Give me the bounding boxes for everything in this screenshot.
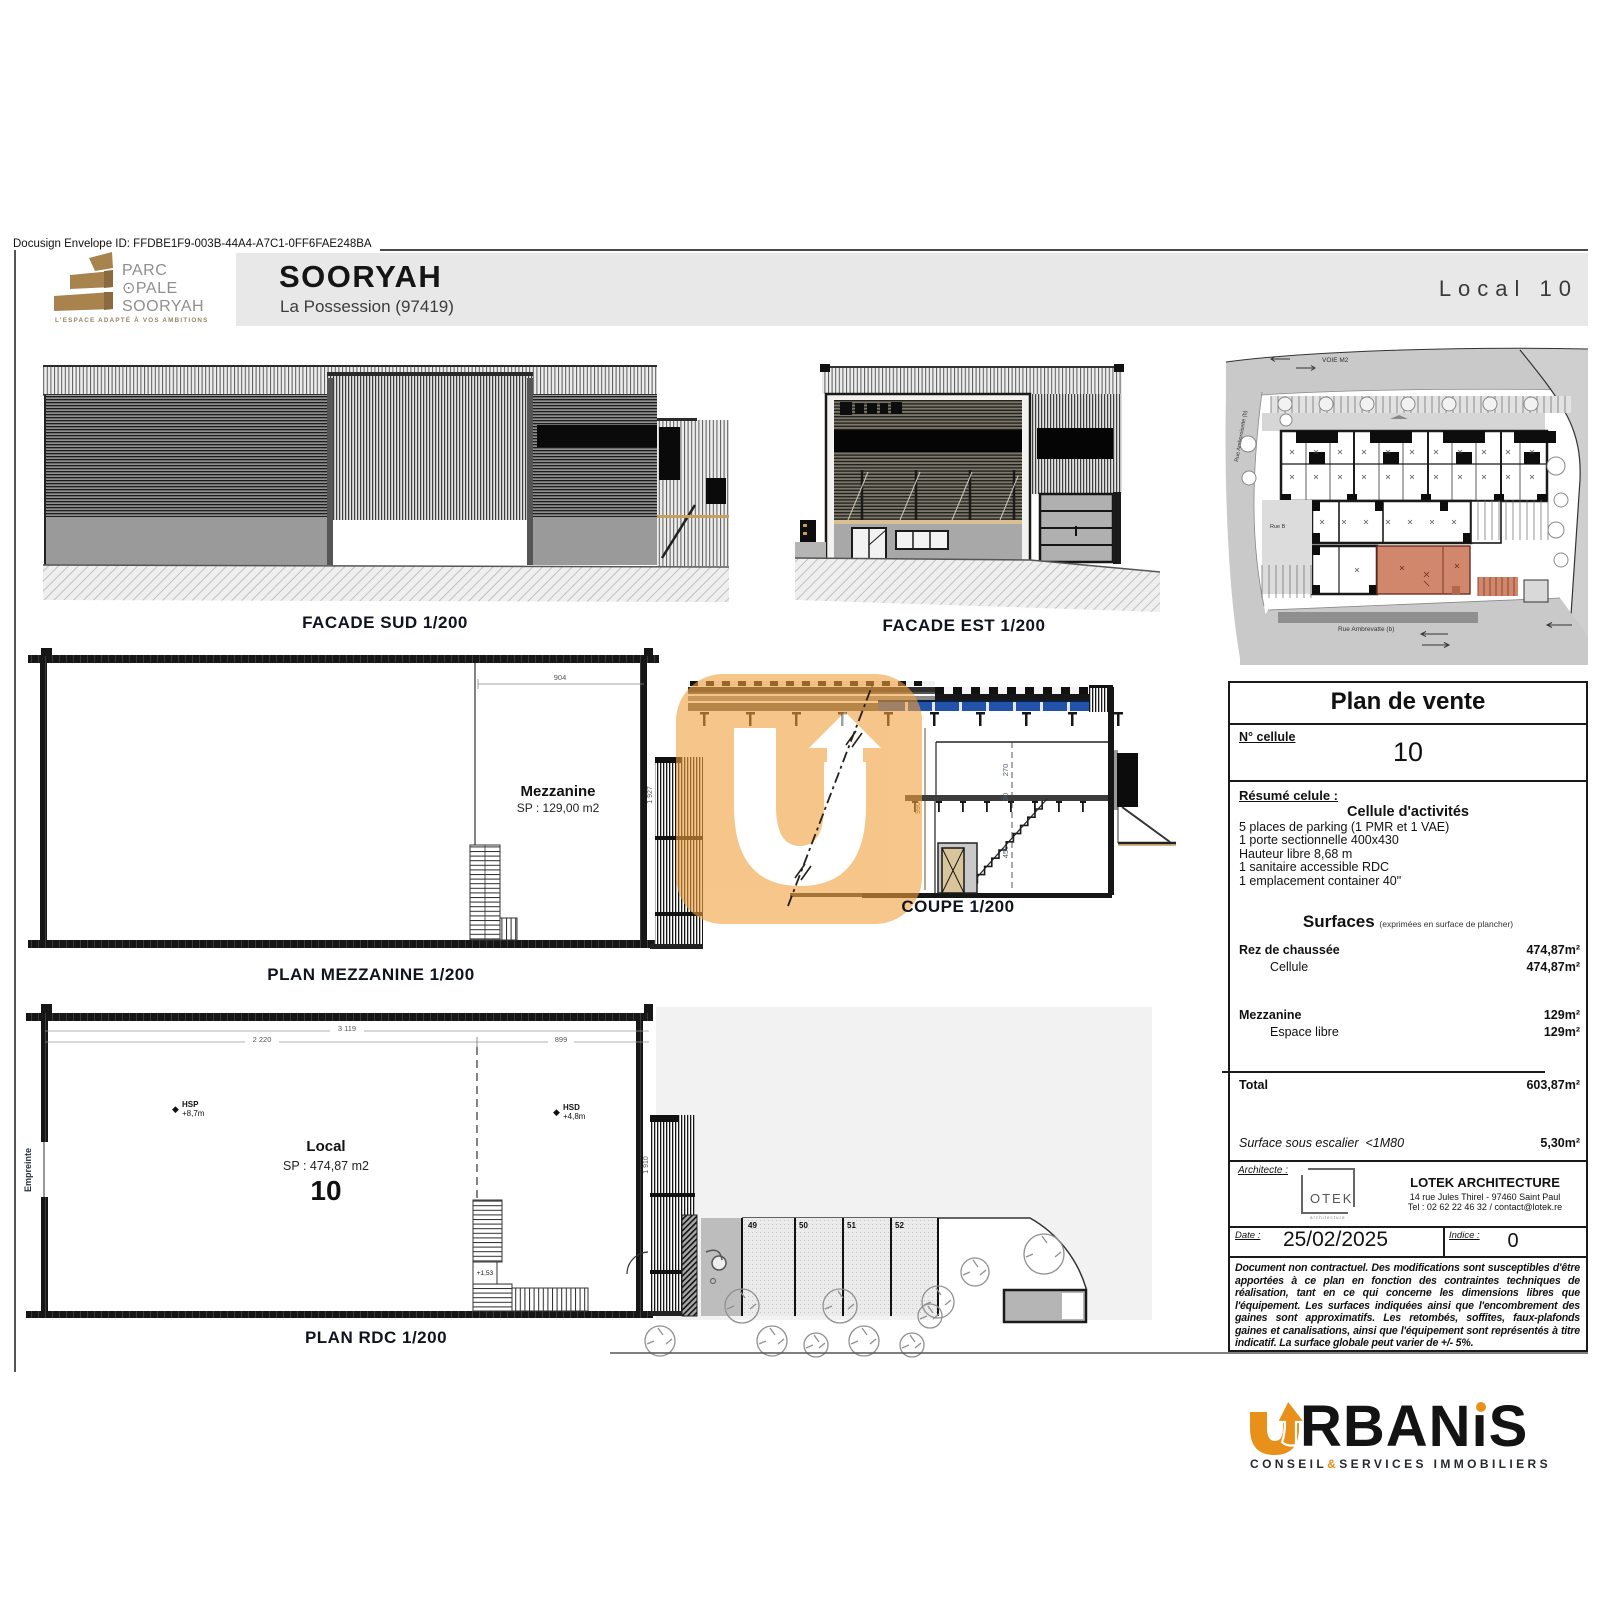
svg-text:Rue B: Rue B: [1270, 524, 1286, 530]
svg-text:1 927: 1 927: [647, 786, 654, 804]
svg-text:904: 904: [554, 673, 567, 682]
svg-text:49: 49: [748, 1221, 757, 1230]
svg-text:52: 52: [895, 1221, 904, 1230]
svg-text:Rue Ambrevatte (b): Rue Ambrevatte (b): [1338, 626, 1394, 633]
svg-text:Local: Local: [306, 1138, 345, 1155]
svg-text:◆: ◆: [553, 1107, 560, 1117]
svg-text:HSD: HSD: [563, 1103, 580, 1112]
svg-text:2 220: 2 220: [253, 1035, 272, 1044]
svg-text:HSP: HSP: [182, 1100, 199, 1109]
svg-text:OTEK: OTEK: [1310, 1191, 1353, 1206]
svg-text:20: 20: [1001, 793, 1010, 801]
svg-text:50: 50: [799, 1221, 808, 1230]
svg-text:899: 899: [555, 1035, 568, 1044]
svg-text:270: 270: [1001, 764, 1010, 777]
svg-text:architecture: architecture: [1310, 1215, 1346, 1220]
svg-text:10: 10: [310, 1175, 341, 1206]
svg-text:SP : 474,87 m2: SP : 474,87 m2: [283, 1159, 369, 1173]
svg-text:Empreinte: Empreinte: [23, 1148, 33, 1192]
svg-text:VOIE M2: VOIE M2: [1322, 357, 1349, 364]
svg-text:1 910: 1 910: [643, 1156, 650, 1174]
svg-text:51: 51: [847, 1221, 856, 1230]
svg-text:+1,53: +1,53: [477, 1270, 494, 1277]
svg-text:+8,7m: +8,7m: [182, 1109, 205, 1118]
svg-text:3 119: 3 119: [338, 1024, 356, 1033]
svg-text:Mezzanine: Mezzanine: [520, 783, 595, 800]
svg-text:+4,8m: +4,8m: [563, 1112, 586, 1121]
svg-text:450: 450: [1001, 846, 1010, 859]
svg-text:SP : 129,00 m2: SP : 129,00 m2: [517, 801, 600, 815]
svg-text:◆: ◆: [172, 1104, 179, 1114]
